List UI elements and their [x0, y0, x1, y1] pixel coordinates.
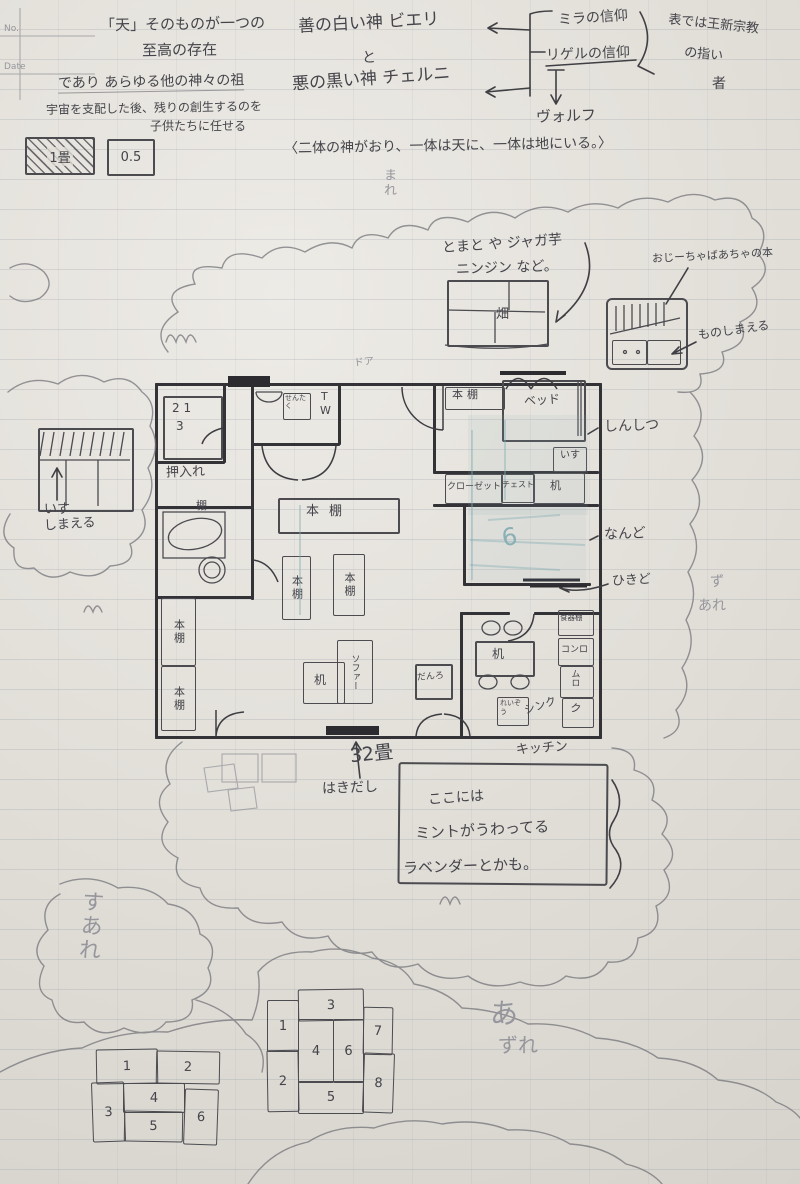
tatami-32-label: 32畳 [349, 742, 394, 768]
cabinet-store-label: ものしまえる [697, 319, 770, 343]
stove-label: コンロ [561, 645, 588, 655]
grid-left-cell-6: 6 [183, 1088, 219, 1145]
wall-left [155, 383, 158, 739]
note-god-black: 悪の黒い神 チェルニ [292, 64, 451, 95]
grid-left-num-1: 1 [123, 1059, 132, 1074]
sofa-label: ソファー [349, 654, 362, 690]
laundry-label: せんたく [285, 394, 309, 411]
sketch-overlay [0, 0, 800, 1184]
side-table-box [38, 428, 134, 512]
bookshelf-v2-box: 本棚 [333, 554, 365, 616]
note-volf: ヴォルフ [536, 107, 597, 126]
bookshelf-l1-label: 本棚 [171, 619, 187, 645]
notebook-no-label: No. [4, 24, 19, 34]
hakidashi-label: はきだし [322, 779, 379, 797]
scribble-top: まれ [380, 168, 395, 218]
dish-shelf-label: 食器棚 [560, 614, 583, 623]
side-table-chair-label: いす [44, 503, 70, 518]
fridge-label: れいぞう [500, 699, 526, 717]
legend-half-tatami-label: 0.5 [121, 150, 142, 165]
note-faith-rigel: リゲルの信仰 [546, 45, 631, 64]
grid-left-cell-3: 3 [91, 1081, 126, 1142]
scribble-bottom-2: ずれ [498, 1034, 538, 1057]
garden-crops-2: ニンジン など。 [456, 258, 558, 278]
wall-bottom [155, 736, 602, 739]
grid-center-cell-7: 7 [363, 1007, 394, 1056]
closet-label: クローゼット [447, 482, 501, 492]
wall-nando-l [463, 505, 466, 585]
living-desk-label: 机 [314, 674, 326, 688]
legend-one-tatami: 1畳 [25, 137, 95, 175]
wall-kitchen-l [460, 612, 463, 738]
hikido-label: ひきど [612, 573, 652, 590]
grid-center-num-4: 4 [312, 1044, 320, 1059]
dining-table-box [475, 641, 535, 677]
garden-crops-1: とまと や ジャガ芋 [442, 232, 563, 256]
blue-tint-nando [468, 508, 586, 582]
grid-center-cell-1: 1 [267, 1000, 299, 1052]
wall-washroom-r [338, 383, 341, 445]
wall-bedroom-l [433, 383, 436, 473]
grid-center-cell-2: 2 [266, 1050, 299, 1113]
grid-center-cell-6: 6 [333, 1019, 364, 1083]
bookshelf-l2-box: 本棚 [161, 666, 196, 731]
toilet-w-label: W [320, 405, 331, 418]
grid-left-num-5: 5 [149, 1119, 158, 1134]
garden-field-label: 畑 [496, 308, 509, 323]
grid-left-num-2: 2 [184, 1060, 193, 1075]
note-god-white: 善の白い神 ビエリ [298, 10, 440, 37]
bookshelf-v1-label: 本棚 [289, 575, 305, 601]
counter-ku-label: ク [569, 702, 582, 716]
grid-left-cell-2: 2 [156, 1050, 221, 1084]
fireplace-label: だんろ [417, 671, 445, 683]
bedroom-bookshelf-label: 本棚 [452, 389, 482, 402]
grid-center-num-6: 6 [344, 1044, 352, 1059]
wall-hall-v [251, 383, 254, 600]
grid-center-num-2: 2 [279, 1073, 288, 1088]
toilet-t-label: T [321, 391, 328, 404]
notebook-page: No. Date 「天」そのものが一つの 至高の存在 であり あらゆる他の神々の… [0, 0, 800, 1184]
bookshelf-l2-label: 本棚 [171, 686, 187, 712]
note-leader-2: の指い [683, 46, 723, 65]
chair-label: いす [560, 450, 580, 462]
note-heaven-2: 至高の存在 [142, 41, 217, 60]
nando-size-label: 6 [500, 523, 520, 553]
grid-left-cell-4: 4 [123, 1083, 185, 1113]
bookshelf-h-label: 本棚 [306, 505, 352, 520]
grid-center-num-3: 3 [327, 997, 336, 1012]
entry-num-2: 3 [176, 420, 184, 434]
bookshelf-l1-box: 本棚 [161, 598, 196, 666]
scribble-right-2: あれ [698, 598, 726, 614]
bed-label: ベッド [524, 393, 561, 409]
bookshelf-v1-box: 本棚 [282, 556, 311, 620]
chest-label: チェスト [502, 480, 534, 489]
wall-kitchen-t1 [460, 612, 510, 615]
entry-num-1: 2 1 [172, 402, 191, 416]
cabinet-books-label: おじーちゃばあちゃの本 [652, 247, 773, 266]
muro-label: ムロ [569, 669, 579, 695]
wall-washroom-b [251, 443, 340, 446]
note-leader-3: 者 [712, 76, 726, 92]
bookshelf-v2-label: 本棚 [341, 572, 357, 598]
notebook-date-label: Date [4, 62, 26, 72]
grid-center-num-1: 1 [279, 1019, 287, 1034]
nando-label: なんど [604, 525, 646, 543]
grid-left-num-3: 3 [104, 1104, 113, 1119]
note-and: と [362, 50, 376, 66]
note-heaven-5: 子供たちに任せる [150, 120, 246, 134]
side-table-store-label: しまえる [44, 516, 97, 535]
grid-center-cell-4: 4 [298, 1019, 334, 1083]
scribble-bottom-1: あ [490, 998, 518, 1030]
grid-center-cell-3: 3 [298, 988, 365, 1021]
legend-half-tatami: 0.5 [107, 139, 155, 176]
grid-center-cell-5: 5 [298, 1081, 364, 1114]
shelf-label: 棚 [196, 500, 207, 513]
oshiire-label: 押入れ [166, 465, 206, 481]
grid-left-cell-1: 1 [96, 1048, 159, 1084]
grid-left-cell-5: 5 [124, 1110, 184, 1142]
note-heaven-3: であり あらゆる他の神々の祖 [58, 72, 245, 93]
grid-center-num-7: 7 [374, 1023, 383, 1038]
note-two-gods: 〈二体の神がおり、一体は天に、一体は地にいる。〉 [284, 135, 612, 157]
wall-closetrow-b [433, 504, 599, 507]
grid-center-num-5: 5 [327, 1090, 335, 1105]
legend-one-tatami-label: 1畳 [47, 147, 72, 166]
wall-nando-b [463, 583, 591, 586]
wall-entry-h [155, 461, 225, 464]
note-heaven-4: 宇宙を支配した後、残りの創生するのを [46, 100, 262, 118]
bed-box [502, 380, 586, 442]
scribble-right-1: ず [710, 574, 724, 590]
cabinet-drawer-left [612, 340, 647, 365]
grid-left-num-4: 4 [150, 1091, 158, 1106]
cabinet-drawer-right [647, 340, 681, 365]
scribble-left: すあれ [73, 889, 104, 975]
wall-right [599, 383, 602, 739]
grid-left-num-6: 6 [197, 1109, 206, 1124]
grid-center-cell-8: 8 [362, 1052, 395, 1113]
grid-center-num-8: 8 [374, 1075, 383, 1090]
bedroom-desk-label: 机 [550, 480, 561, 493]
note-heaven-1: 「天」そのものが一つの [100, 15, 265, 35]
wall-entry-v [223, 383, 226, 463]
dining-table-label: 机 [492, 648, 504, 662]
note-leader-1: 表では王新宗教 [667, 13, 759, 37]
note-faith-mira: ミラの信仰 [558, 8, 629, 29]
kitchen-label: キッチン [516, 740, 569, 759]
bedroom-label: しんしつ [604, 417, 660, 435]
scribble-door: ドア [353, 356, 374, 370]
